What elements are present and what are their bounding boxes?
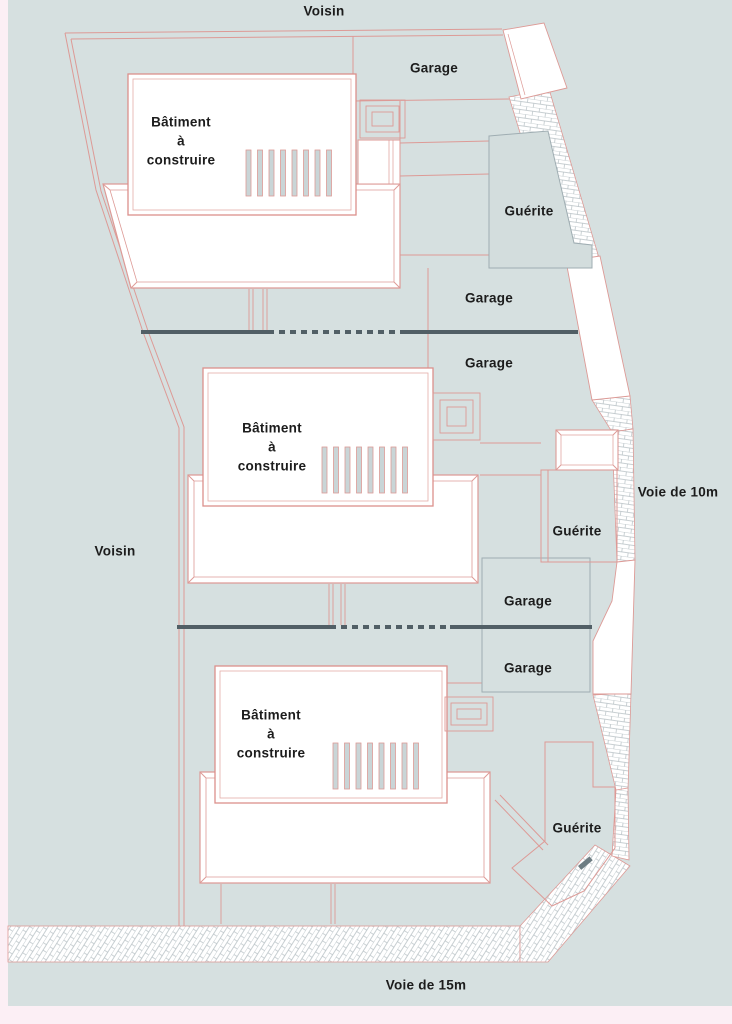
neighbor-top-label: Voisin	[303, 4, 344, 19]
building-2-label-line2: à	[238, 438, 307, 457]
garage-label-3: Garage	[465, 356, 513, 371]
building-1-label-line2: à	[147, 132, 216, 151]
guerite-label-2: Guérite	[552, 524, 601, 539]
garage-label-5: Garage	[504, 661, 552, 676]
building-2-label-line1: Bâtiment	[238, 419, 307, 438]
site-plan-canvas: Voisin Voisin Garage Garage Garage Garag…	[0, 0, 732, 1024]
neighbor-left-label: Voisin	[94, 544, 135, 559]
guerite-label-1: Guérite	[504, 204, 553, 219]
garage-label-1: Garage	[410, 61, 458, 76]
garage-label-2: Garage	[465, 291, 513, 306]
road-right-label: Voie de 10m	[638, 485, 719, 500]
building-3-label-line3: construire	[237, 744, 306, 763]
building-2-label-line3: construire	[238, 457, 307, 476]
building-3-label-line2: à	[237, 725, 306, 744]
building-1-label: Bâtiment à construire	[147, 113, 216, 170]
building-2-label: Bâtiment à construire	[238, 419, 307, 476]
site-plan-drawing	[0, 0, 732, 1024]
guerite-label-3: Guérite	[552, 821, 601, 836]
building-3-label-line1: Bâtiment	[237, 706, 306, 725]
building-3-label: Bâtiment à construire	[237, 706, 306, 763]
garage-label-4: Garage	[504, 594, 552, 609]
road-bottom-label: Voie de 15m	[386, 978, 467, 993]
building-1-label-line1: Bâtiment	[147, 113, 216, 132]
building-1-label-line3: construire	[147, 151, 216, 170]
